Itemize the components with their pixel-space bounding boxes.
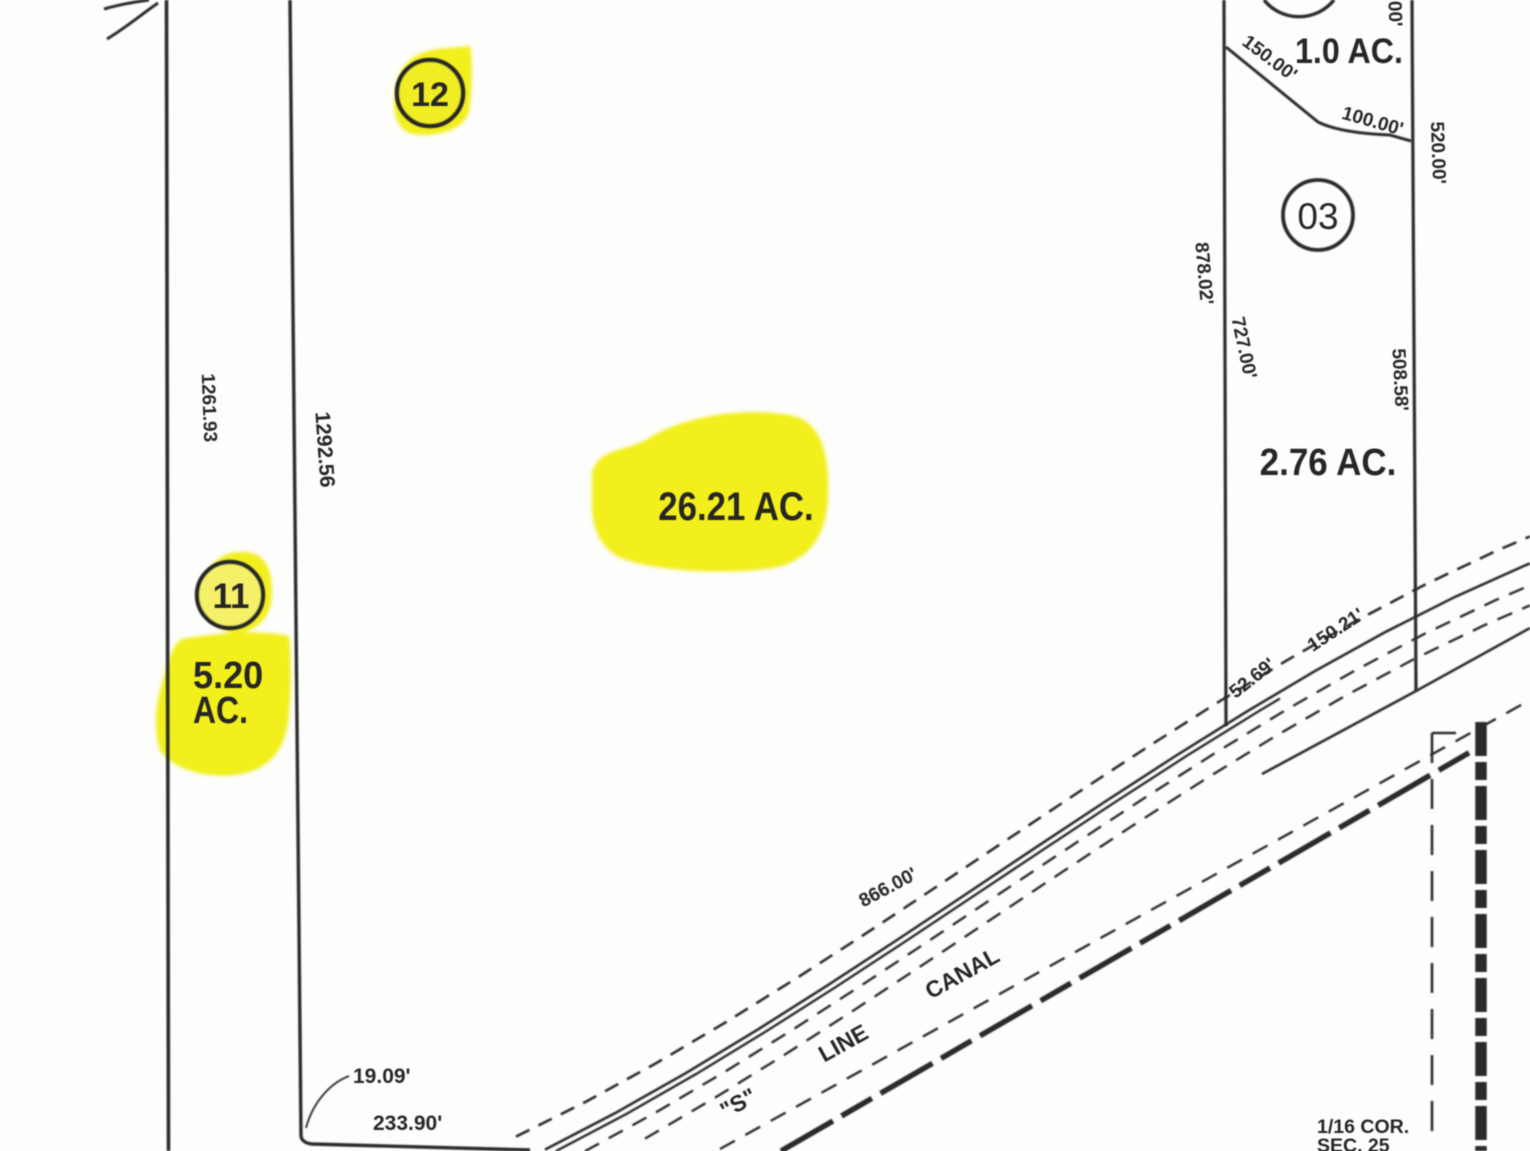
svg-text:AC.: AC.	[193, 689, 248, 731]
svg-text:12: 12	[411, 76, 449, 114]
svg-text:"S": "S"	[716, 1083, 761, 1124]
svg-text:26.21 AC.: 26.21 AC.	[658, 484, 813, 529]
svg-text:878.02': 878.02'	[1190, 241, 1216, 305]
svg-text:11: 11	[213, 577, 250, 616]
svg-text:00': 00'	[1384, 1, 1406, 27]
svg-text:727.00': 727.00'	[1227, 315, 1261, 381]
svg-text:CANAL: CANAL	[921, 942, 1004, 1004]
svg-text:1261.93: 1261.93	[197, 373, 220, 442]
svg-text:150.21': 150.21'	[1304, 605, 1368, 657]
svg-text:1.0 AC.: 1.0 AC.	[1295, 33, 1403, 72]
svg-text:LINE: LINE	[814, 1019, 872, 1067]
svg-text:2.76 AC.: 2.76 AC.	[1260, 441, 1397, 484]
svg-text:19.09': 19.09'	[353, 1065, 411, 1088]
svg-text:508.58': 508.58'	[1387, 348, 1411, 412]
svg-text:SEC. 25: SEC. 25	[1317, 1135, 1390, 1151]
svg-text:1292.56: 1292.56	[310, 411, 338, 488]
svg-text:233.90': 233.90'	[373, 1112, 442, 1135]
svg-text:520.00': 520.00'	[1426, 121, 1449, 184]
svg-text:03: 03	[1297, 196, 1338, 237]
svg-text:150.00': 150.00'	[1238, 31, 1301, 85]
